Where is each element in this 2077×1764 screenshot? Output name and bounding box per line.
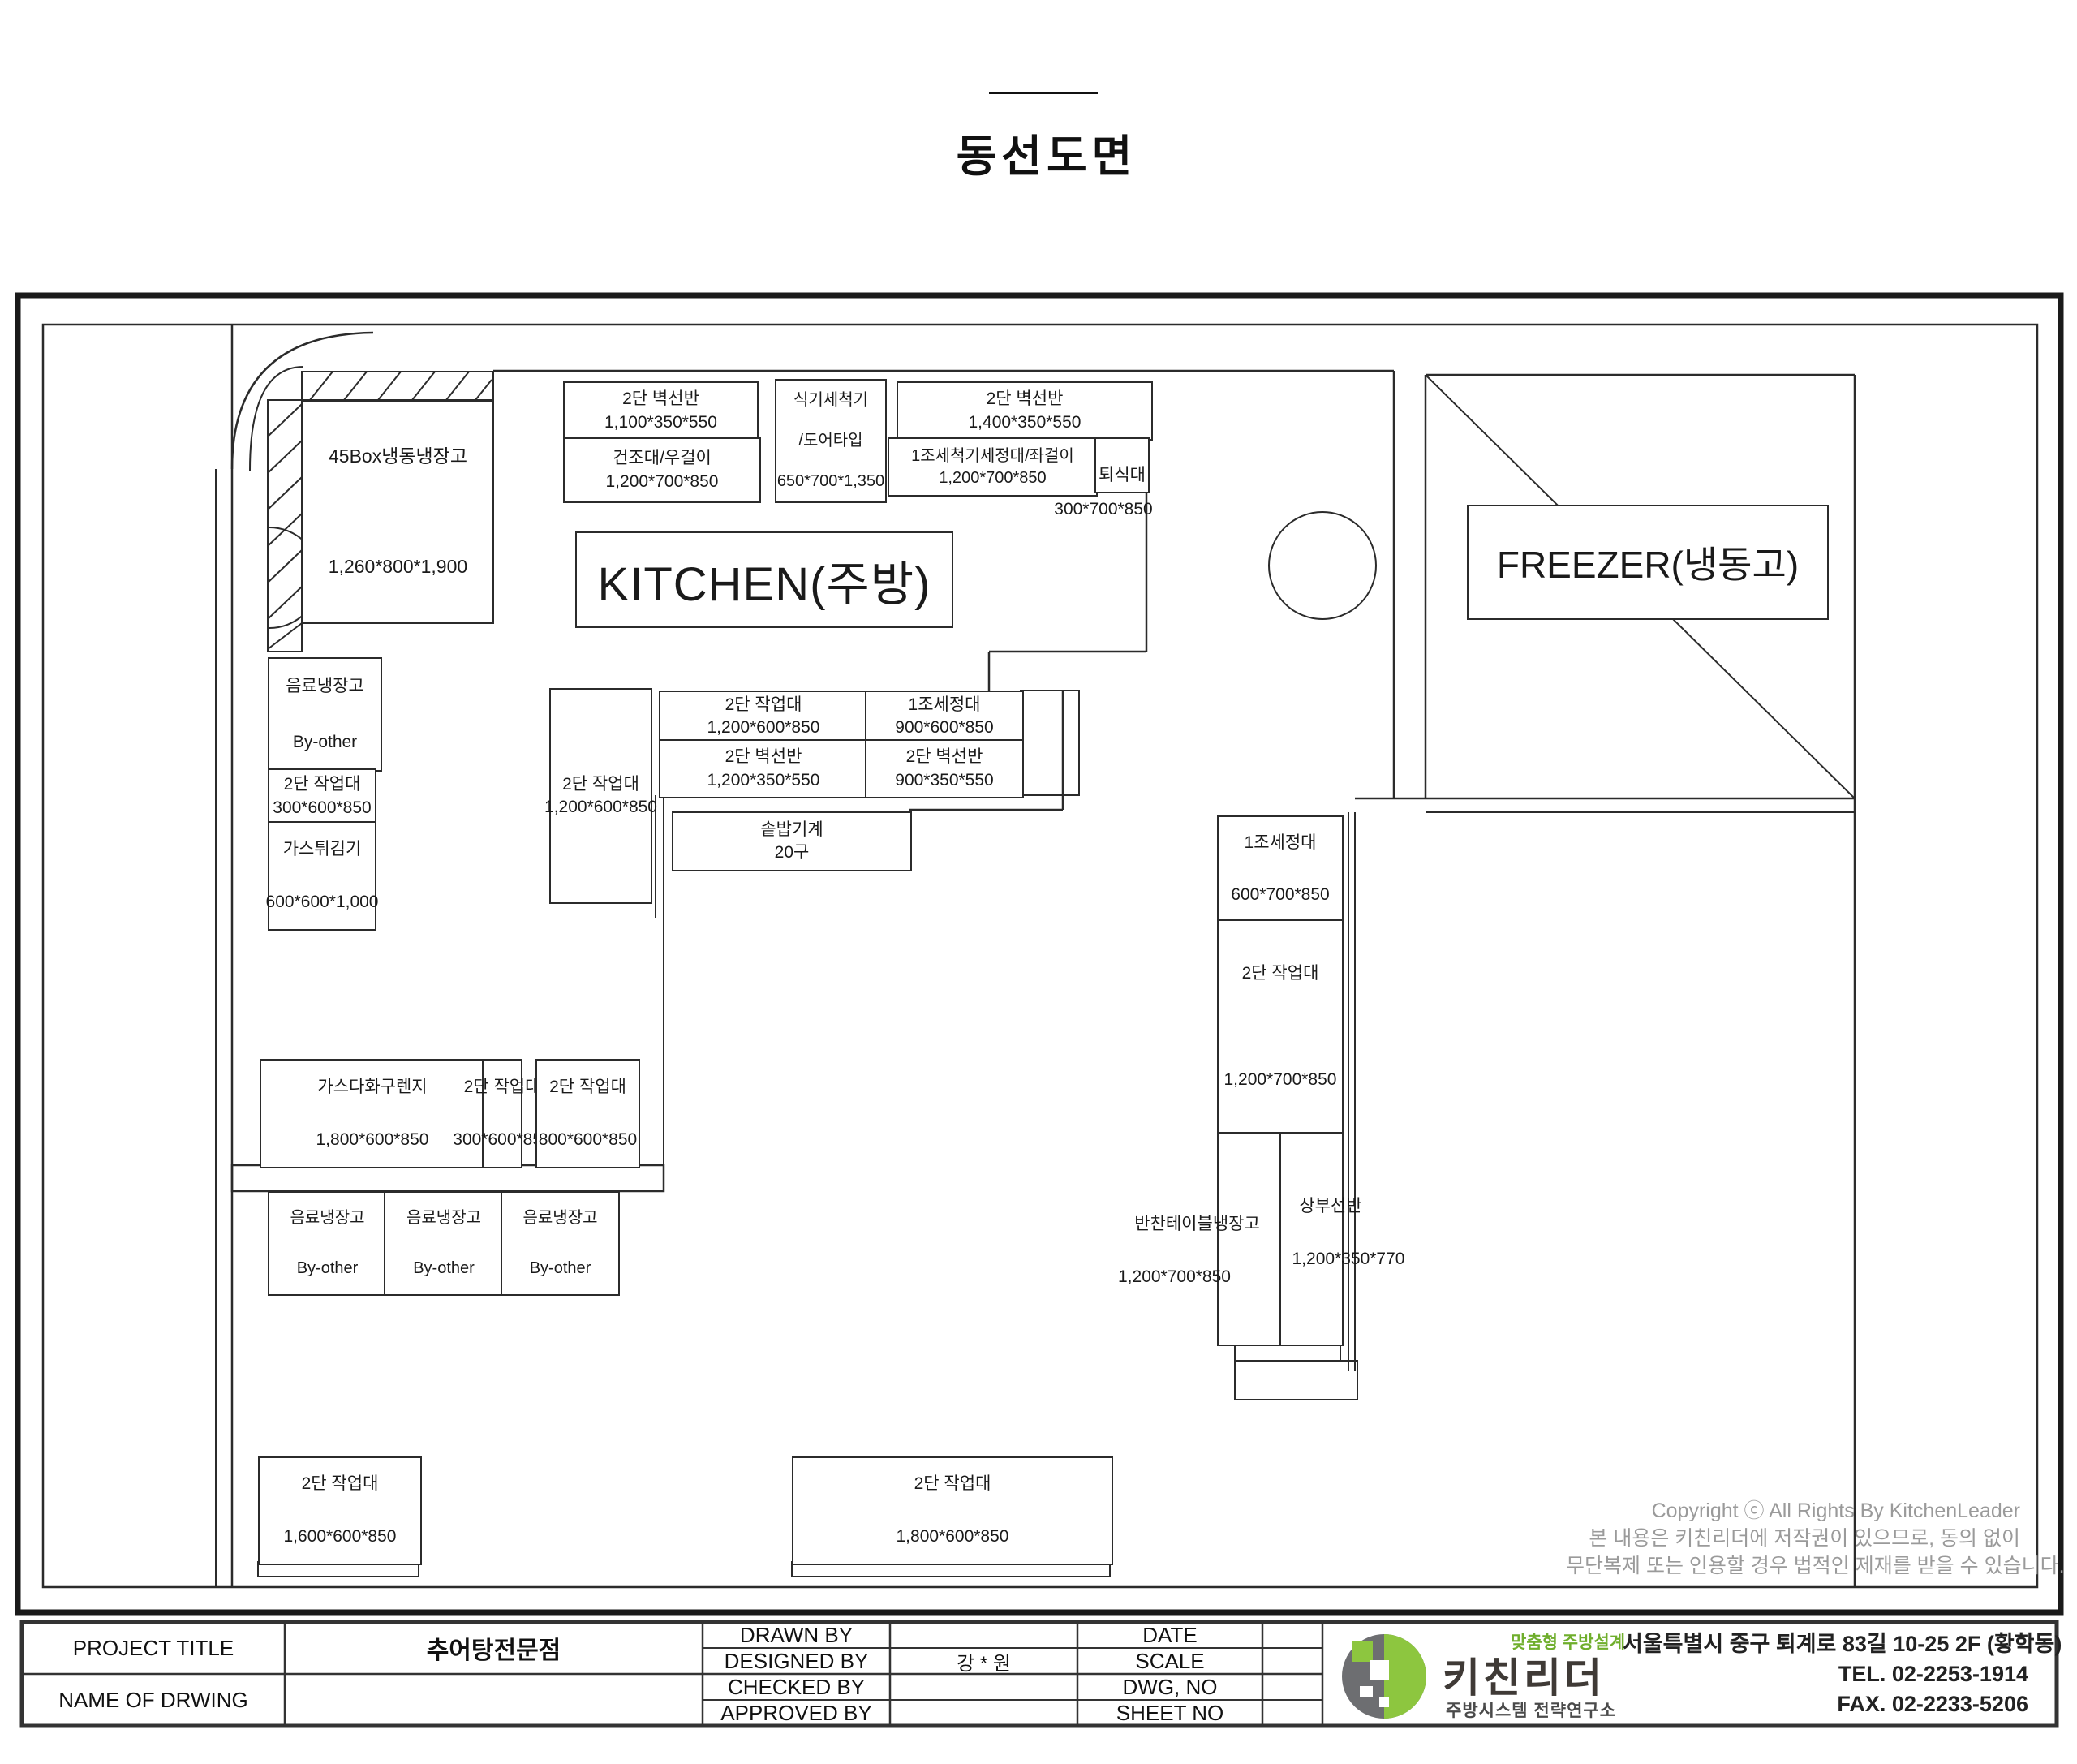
copyright-notice: Copyright ⓒ All Rights By KitchenLeader … xyxy=(1566,1497,2020,1580)
tb-approved-by-value xyxy=(890,1700,1077,1726)
equip-fridge-45box: 45Box냉동냉장고 1,260*800*1,900 xyxy=(302,400,494,624)
equip-dishwasher: 식기세척기 /도어타입 650*700*1,350 xyxy=(775,379,887,503)
hatch-top-strip xyxy=(302,372,493,400)
mid-wall-pair xyxy=(656,795,664,1165)
tb-name-of-drawing-label: NAME OF DRWING xyxy=(22,1674,285,1726)
floor-plan-page: 동선도면 xyxy=(0,0,2077,1764)
equip-wall-shelf-mid-1200: 2단 벽선반 1,200*350*550 xyxy=(659,739,868,798)
right-step-box xyxy=(1235,1361,1357,1400)
company-address-block: 서울특별시 중구 퇴계로 83길 10-25 2F (황학동) TEL. 02-… xyxy=(1623,1629,2028,1719)
equip-gas-range: 가스다화구렌지 1,800*600*850 xyxy=(260,1059,485,1168)
equip-worktable-bottom-1800: 2단 작업대 1,800*600*850 xyxy=(792,1456,1113,1565)
right-column-walls xyxy=(1348,812,1355,1371)
equip-gas-fryer: 가스튀김기 600*600*1,000 xyxy=(268,821,376,931)
equip-worktable-mid-1200: 2단 작업대 1,200*600*850 xyxy=(659,691,868,742)
tb-sheet-no-label: SHEET NO xyxy=(1077,1700,1262,1726)
equip-sink-mid-900: 1조세정대 900*600*850 xyxy=(865,691,1024,742)
equip-return-table: 퇴식대 xyxy=(1094,437,1150,493)
company-tel: TEL. 02-2253-1914 xyxy=(1623,1659,2028,1689)
equip-drink-fridge-top: 음료냉장고 By-other xyxy=(268,657,382,772)
equip-upper-shelf-box xyxy=(1279,1132,1344,1346)
equip-worktable-bottom-1600: 2단 작업대 1,600*600*850 xyxy=(258,1456,422,1565)
equip-worktable-left-300: 2단 작업대 300*600*850 xyxy=(268,768,376,824)
label-upper-shelf: 상부선반 xyxy=(1282,1193,1379,1217)
equip-sink-washer-table: 1조세척기세정대/좌걸이 1,200*700*850 xyxy=(888,437,1098,497)
copyright-line-3: 무단복제 또는 인용할 경우 법적인 제재를 받을 수 있습니다. xyxy=(1566,1552,2020,1580)
equip-rice-cooker: 솥밥기계 20구 xyxy=(672,811,912,871)
tb-project-title-label: PROJECT TITLE xyxy=(22,1622,285,1674)
kitchen-room-label: KITCHEN(주방) xyxy=(575,531,953,628)
pass-circle xyxy=(1269,512,1376,619)
equip-worktable-gas-300: 2단 작업대 300*600*850 xyxy=(482,1059,522,1168)
tb-drawn-by-value xyxy=(890,1622,1077,1648)
lower-counter-bar xyxy=(232,1165,664,1191)
equip-dry-rack: 건조대/우걸이 1,200*700*850 xyxy=(563,437,761,503)
counter-empty-cell xyxy=(1021,691,1079,795)
equip-drink-fridge-2: 음료냉장고 By-other xyxy=(384,1191,504,1296)
tb-date-label: DATE xyxy=(1077,1622,1262,1648)
equip-drink-fridge-3: 음료냉장고 By-other xyxy=(501,1191,620,1296)
equip-drink-fridge-1: 음료냉장고 By-other xyxy=(268,1191,387,1296)
tb-dwg-no-label: DWG, NO xyxy=(1077,1674,1262,1700)
equip-wall-shelf-mid-900: 2단 벽선반 900*350*550 xyxy=(865,739,1024,798)
tb-scale-label: SCALE xyxy=(1077,1648,1262,1674)
hatch-left-strip xyxy=(268,400,302,652)
freezer-room-label: FREEZER(냉동고) xyxy=(1467,505,1829,620)
tb-checked-by-value xyxy=(890,1674,1077,1700)
company-fax: FAX. 02-2233-5206 xyxy=(1623,1689,2028,1719)
tb-name-of-drawing-value xyxy=(285,1674,703,1726)
copyright-line-2: 본 내용은 키친리더에 저작권이 있으므로, 동의 없이 xyxy=(1566,1525,2020,1552)
copyright-line-1: Copyright ⓒ All Rights By KitchenLeader xyxy=(1566,1497,2020,1525)
equip-worktable-right-1200: 2단 작업대 1,200*700*850 xyxy=(1217,919,1344,1135)
kitchenleader-logo-icon xyxy=(1342,1634,1426,1719)
equip-sink-right-600: 1조세정대 600*700*850 xyxy=(1217,815,1344,923)
equip-worktable-gas-800: 2단 작업대 800*600*850 xyxy=(535,1059,640,1168)
tb-approved-by-label: APPROVED BY xyxy=(703,1700,890,1726)
logo-subtitle: 주방시스템 전략연구소 xyxy=(1446,1697,1616,1722)
label-return-table-dims: 300*700*850 xyxy=(1030,500,1176,519)
tb-designed-by-value: 강 * 원 xyxy=(890,1648,1077,1674)
tb-project-title-value: 추어탕전문점 xyxy=(285,1622,703,1674)
equip-wall-shelf-1100: 2단 벽선반 1,100*350*550 xyxy=(563,381,759,441)
company-address: 서울특별시 중구 퇴계로 83길 10-25 2F (황학동) xyxy=(1623,1629,2028,1659)
label-side-table-fridge-dims: 1,200*700*850 xyxy=(1099,1267,1249,1287)
tb-checked-by-label: CHECKED BY xyxy=(703,1674,890,1700)
label-side-table-fridge: 반찬테이블냉장고 xyxy=(1110,1211,1284,1235)
curved-wall-inner xyxy=(250,367,303,471)
logo-brand: 키친리더 xyxy=(1443,1646,1605,1704)
equip-side-table-fridge-box xyxy=(1217,1132,1283,1346)
tb-drawn-by-label: DRAWN BY xyxy=(703,1622,890,1648)
tb-designed-by-label: DESIGNED BY xyxy=(703,1648,890,1674)
equip-wall-shelf-1400: 2단 벽선반 1,400*350*550 xyxy=(897,381,1153,441)
equip-worktable-vert-1200: 2단 작업대 1,200*600*850 xyxy=(549,688,652,904)
label-upper-shelf-dims: 1,200*350*770 xyxy=(1275,1250,1421,1269)
